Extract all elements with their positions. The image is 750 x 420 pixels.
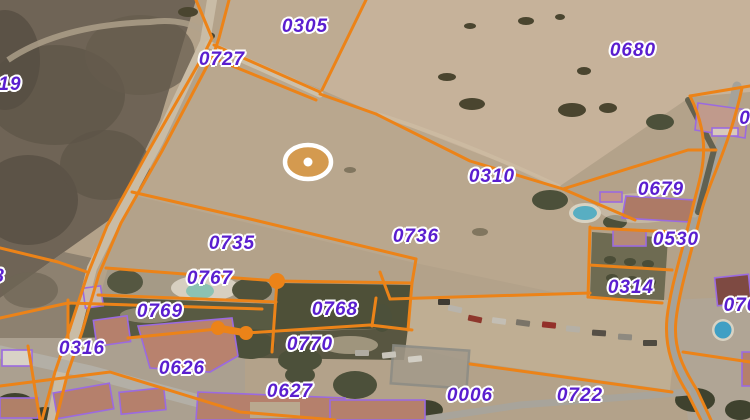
- satellite-map-canvas: [0, 0, 750, 420]
- location-marker: [285, 145, 331, 179]
- parcel-vertex-dot: [211, 321, 225, 335]
- map-viewport[interactable]: 1907270305068003100679053003140736073507…: [0, 0, 750, 420]
- parcel-vertex-dot: [239, 326, 253, 340]
- parcel-vertex-dot: [269, 273, 285, 289]
